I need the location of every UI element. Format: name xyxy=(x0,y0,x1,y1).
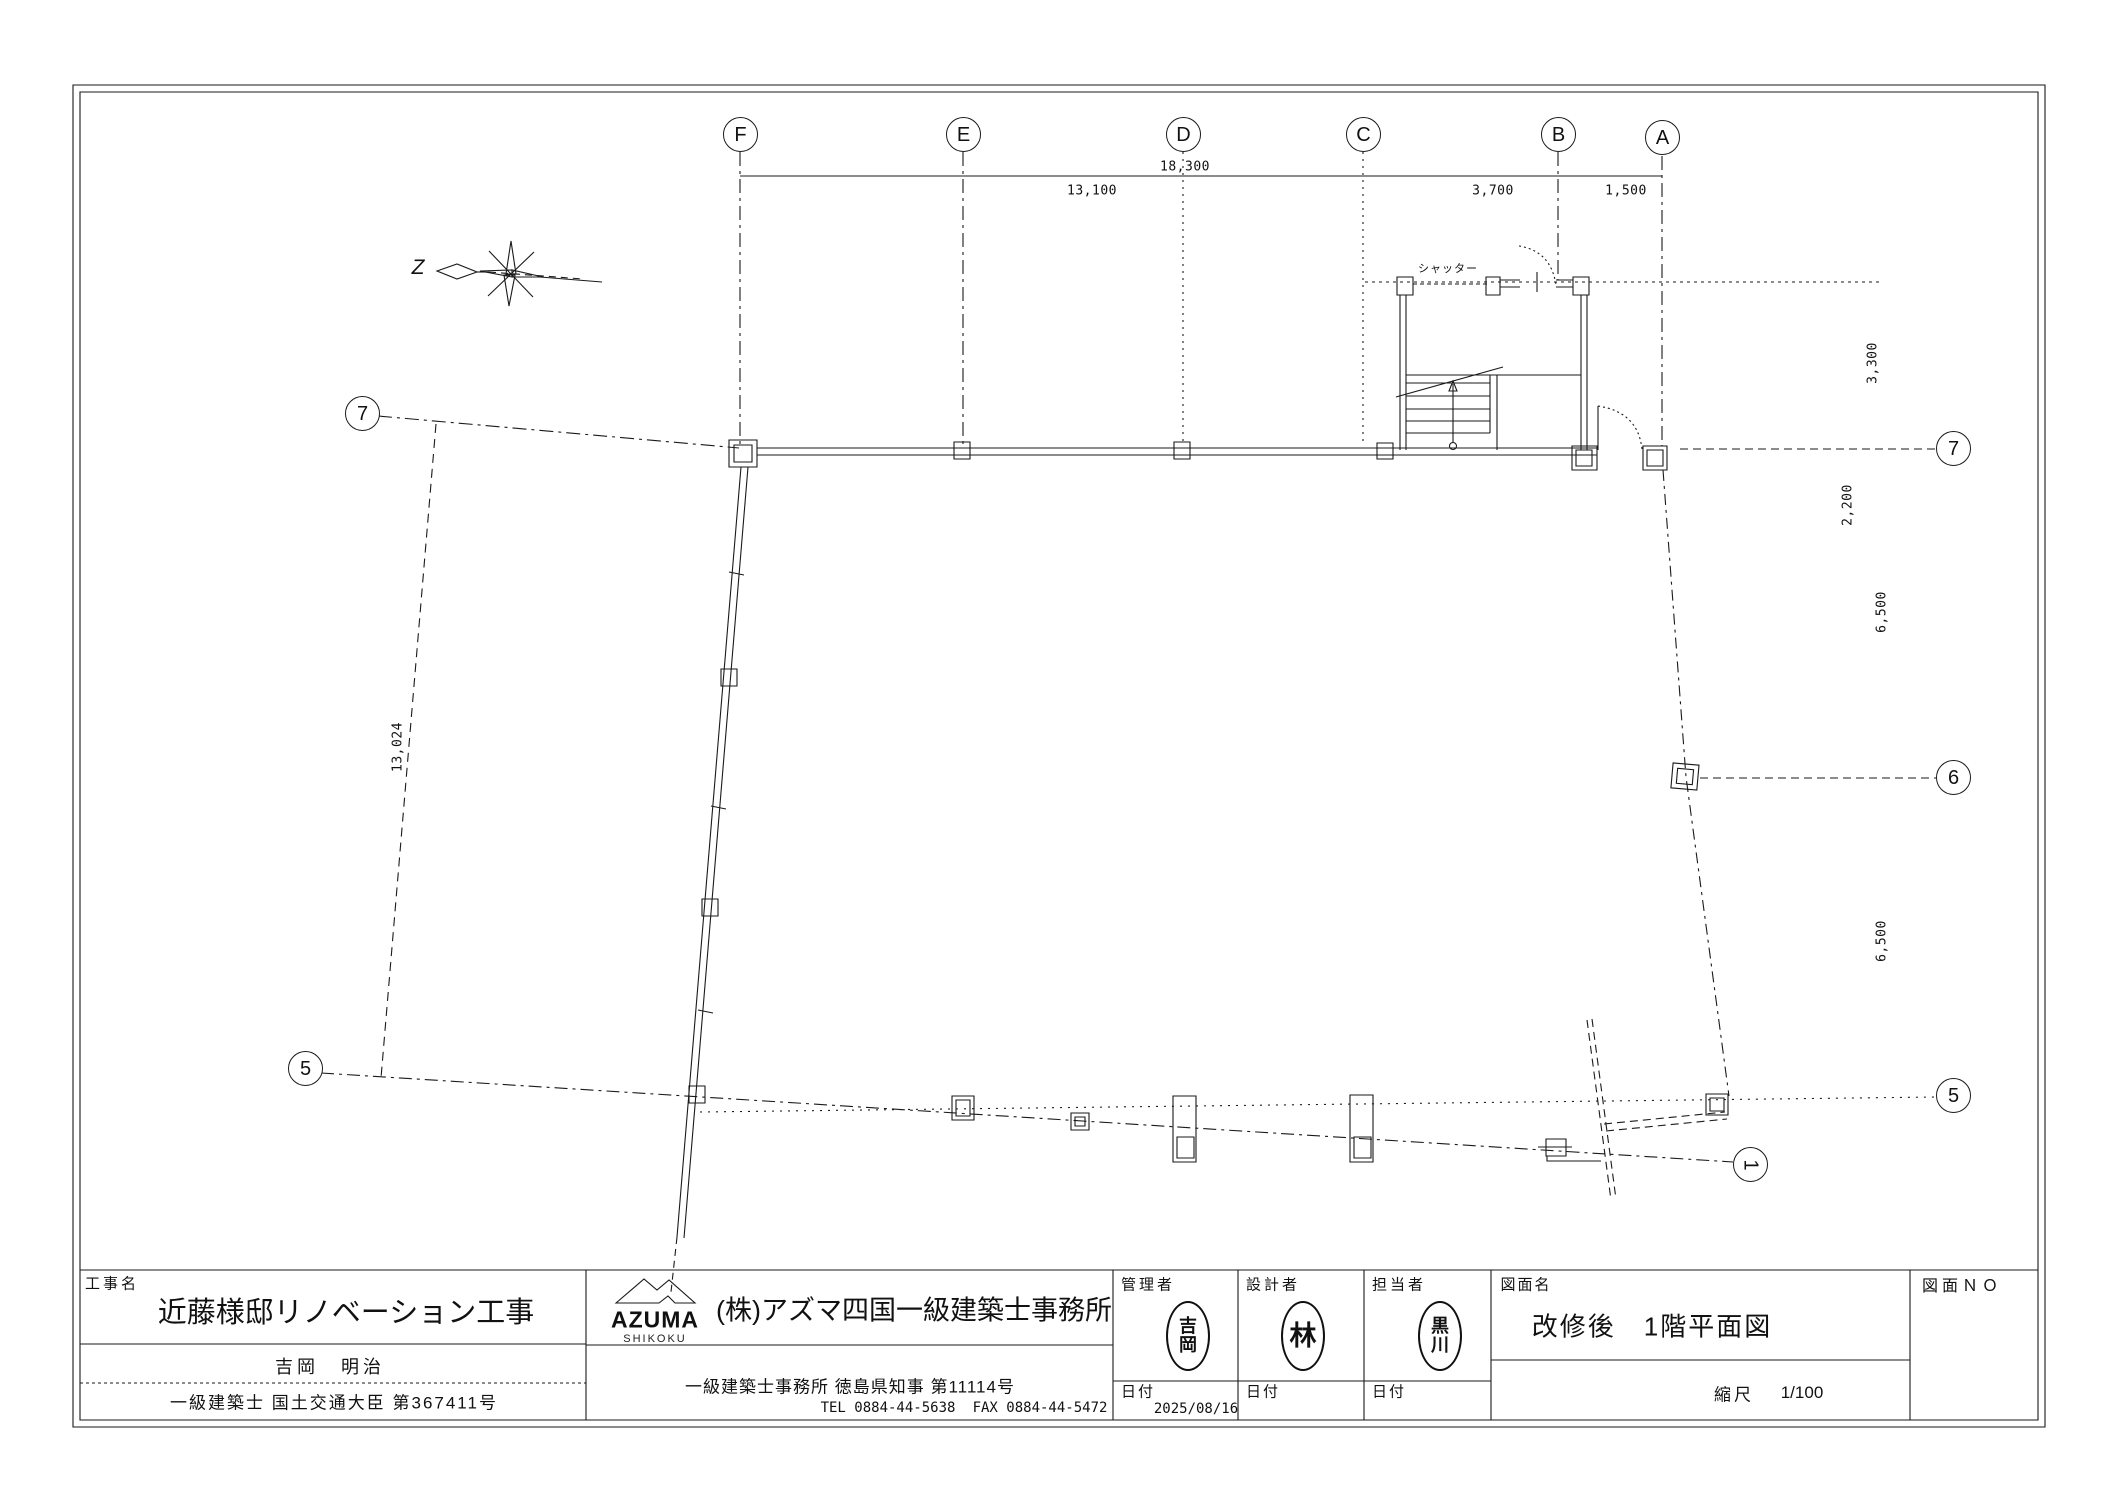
grid-bubble-5-left: 5 xyxy=(288,1051,323,1086)
floor-plan-drawing xyxy=(0,0,2116,1497)
compass-rose xyxy=(437,241,602,306)
project-name-label: 工事名 xyxy=(85,1273,139,1294)
shutter-label: シャッター xyxy=(1418,260,1478,276)
date-label-staff: 日付 xyxy=(1372,1381,1406,1402)
grid-bubble-A: A xyxy=(1645,120,1680,155)
drawing-sheet: F E D C B A 7 5 7 6 5 1 18,300 13,100 3,… xyxy=(0,0,2116,1497)
drawing-name-label: 図面名 xyxy=(1500,1274,1551,1295)
azuma-logo-subtext: SHIKOKU xyxy=(623,1333,687,1345)
designer-stamp: 林 xyxy=(1281,1301,1325,1371)
page-border xyxy=(73,85,2045,1427)
grid-bubble-7-left: 7 xyxy=(345,396,380,431)
date-label-manager: 日付 xyxy=(1121,1381,1155,1402)
grid-bubble-B: B xyxy=(1541,117,1576,152)
grid-bubble-D: D xyxy=(1166,117,1201,152)
company-name: (株)アズマ四国一級建築士事務所 xyxy=(716,1289,1112,1328)
bottom-right-walls xyxy=(1538,1019,1728,1200)
left-boundary-wall xyxy=(671,467,748,1292)
north-label: Z xyxy=(412,256,425,280)
grid-bubble-E: E xyxy=(946,117,981,152)
grid-bubble-5-right: 5 xyxy=(1936,1078,1971,1113)
dim-right-3: 6,500 xyxy=(1875,591,1890,633)
dim-top-seg-1: 13,100 xyxy=(1067,184,1117,199)
grid-lines xyxy=(321,152,1936,1162)
bottom-columns xyxy=(952,763,1699,1162)
grid-bubble-6-right: 6 xyxy=(1936,760,1971,795)
dim-top-total: 18,300 xyxy=(1160,160,1210,175)
project-name: 近藤様邸リノベーション工事 xyxy=(158,1289,534,1331)
date-value: 2025/08/16 xyxy=(1154,1401,1238,1417)
dimension-lines xyxy=(740,176,1883,282)
dim-right-2: 2,200 xyxy=(1841,484,1856,526)
stairs xyxy=(1396,367,1581,450)
manager-label: 管理者 xyxy=(1121,1274,1175,1295)
date-label-designer: 日付 xyxy=(1246,1381,1280,1402)
dim-right-4: 6,500 xyxy=(1875,920,1890,962)
stair-enclosure xyxy=(1397,246,1642,450)
staff-stamp: 黒 川 xyxy=(1418,1301,1462,1371)
top-wall xyxy=(729,440,1667,470)
dim-top-seg-3: 1,500 xyxy=(1605,184,1647,199)
azuma-logo-icon xyxy=(616,1279,695,1303)
scale-value: 1/100 xyxy=(1781,1383,1824,1403)
architect-license: 一級建築士 国土交通大臣 第367411号 xyxy=(170,1389,498,1414)
dim-top-seg-2: 3,700 xyxy=(1472,184,1514,199)
client-name: 吉岡 明治 xyxy=(275,1353,385,1379)
tel-number: TEL 0884-44-5638 xyxy=(821,1400,956,1416)
grid-bubble-7-right: 7 xyxy=(1936,431,1971,466)
fax-number: FAX 0884-44-5472 xyxy=(973,1400,1108,1416)
grid-bubble-F: F xyxy=(723,117,758,152)
staff-label: 担当者 xyxy=(1372,1274,1426,1295)
dim-left-boundary: 13,024 xyxy=(391,722,406,772)
drawing-no-label: 図面ＮＯ xyxy=(1922,1272,2002,1296)
drawing-name: 改修後 1階平面図 xyxy=(1532,1307,1772,1344)
manager-stamp: 吉 岡 xyxy=(1166,1301,1210,1371)
grid-bubble-C: C xyxy=(1346,117,1381,152)
scale-label: 縮尺 xyxy=(1714,1381,1754,1406)
dim-right-1: 3,300 xyxy=(1866,342,1881,384)
designer-label: 設計者 xyxy=(1246,1274,1300,1295)
grid-bubble-1: 1 xyxy=(1733,1147,1768,1182)
office-license: 一級建築士事務所 徳島県知事 第11114号 xyxy=(685,1373,1015,1398)
azuma-logo-text: AZUMA xyxy=(611,1307,699,1334)
